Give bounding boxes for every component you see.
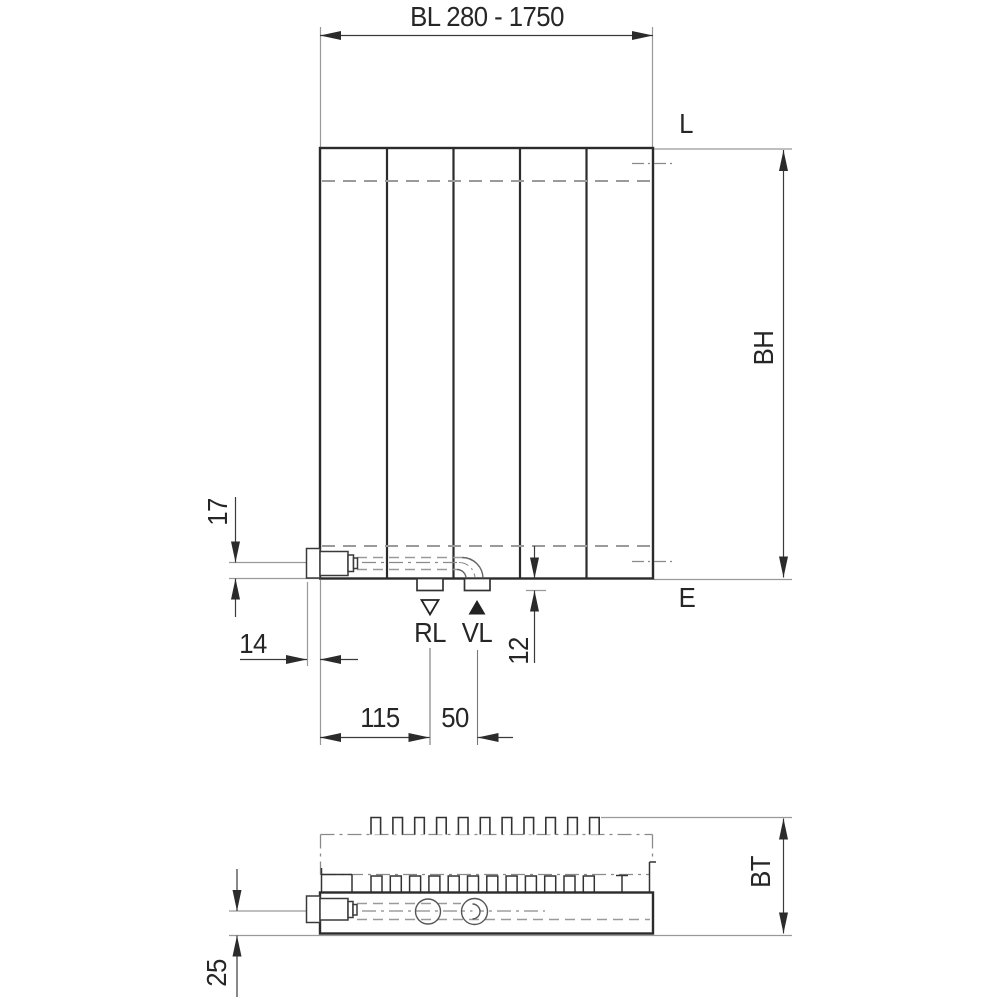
phantom-panel-outline <box>321 835 653 876</box>
width-dim-label: BL 280 - 1750 <box>410 3 564 31</box>
return-connection-label: RL <box>414 619 446 647</box>
height-dim-label: BH <box>750 331 778 366</box>
supply-stub <box>465 579 491 591</box>
return-flow-icon <box>422 600 439 615</box>
dim-17-label: 17 <box>204 498 232 526</box>
level-bottom-label: E <box>679 584 696 612</box>
radiator-body-section <box>320 893 653 934</box>
dim-115-label: 115 <box>360 704 399 732</box>
convector-fins-lower <box>371 876 594 892</box>
radiator-body-front <box>320 148 653 579</box>
front-view <box>307 148 675 615</box>
dim-50-label: 50 <box>441 704 469 732</box>
depth-dim-label: BT <box>747 856 775 888</box>
drawing-linework <box>0 0 1000 1000</box>
top-view <box>307 818 657 934</box>
dim-25-label: 25 <box>203 959 231 987</box>
radiator-dimension-drawing: BL 280 - 1750 L E BH RL VL 17 14 115 50 … <box>0 0 1000 1000</box>
return-stub <box>417 579 443 591</box>
supply-connection-label: VL <box>462 619 492 647</box>
convector-fins-upper <box>371 818 599 835</box>
level-top-label: L <box>679 110 693 138</box>
dim-12-label: 12 <box>505 637 533 665</box>
dim-14-label: 14 <box>239 630 267 658</box>
supply-flow-icon <box>469 600 486 615</box>
